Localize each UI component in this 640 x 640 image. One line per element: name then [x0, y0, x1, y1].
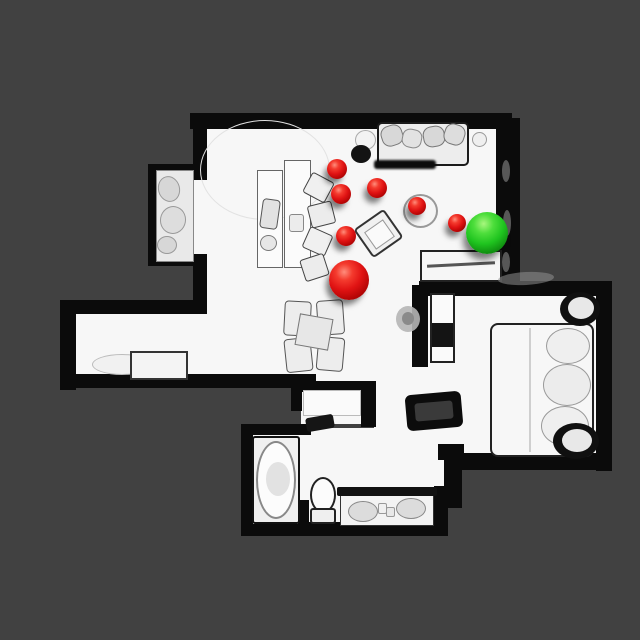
waypoint-red-3[interactable]	[367, 178, 387, 198]
waypoint-red-4[interactable]	[408, 197, 426, 215]
markers-layer	[0, 0, 640, 640]
scene-viewport[interactable]	[0, 0, 640, 640]
waypoint-red-5[interactable]	[448, 214, 466, 232]
waypoint-green-goal[interactable]	[466, 212, 508, 254]
waypoint-red-1[interactable]	[327, 159, 347, 179]
waypoint-red-6[interactable]	[336, 226, 356, 246]
waypoint-red-2[interactable]	[331, 184, 351, 204]
waypoint-red-large[interactable]	[329, 260, 369, 300]
